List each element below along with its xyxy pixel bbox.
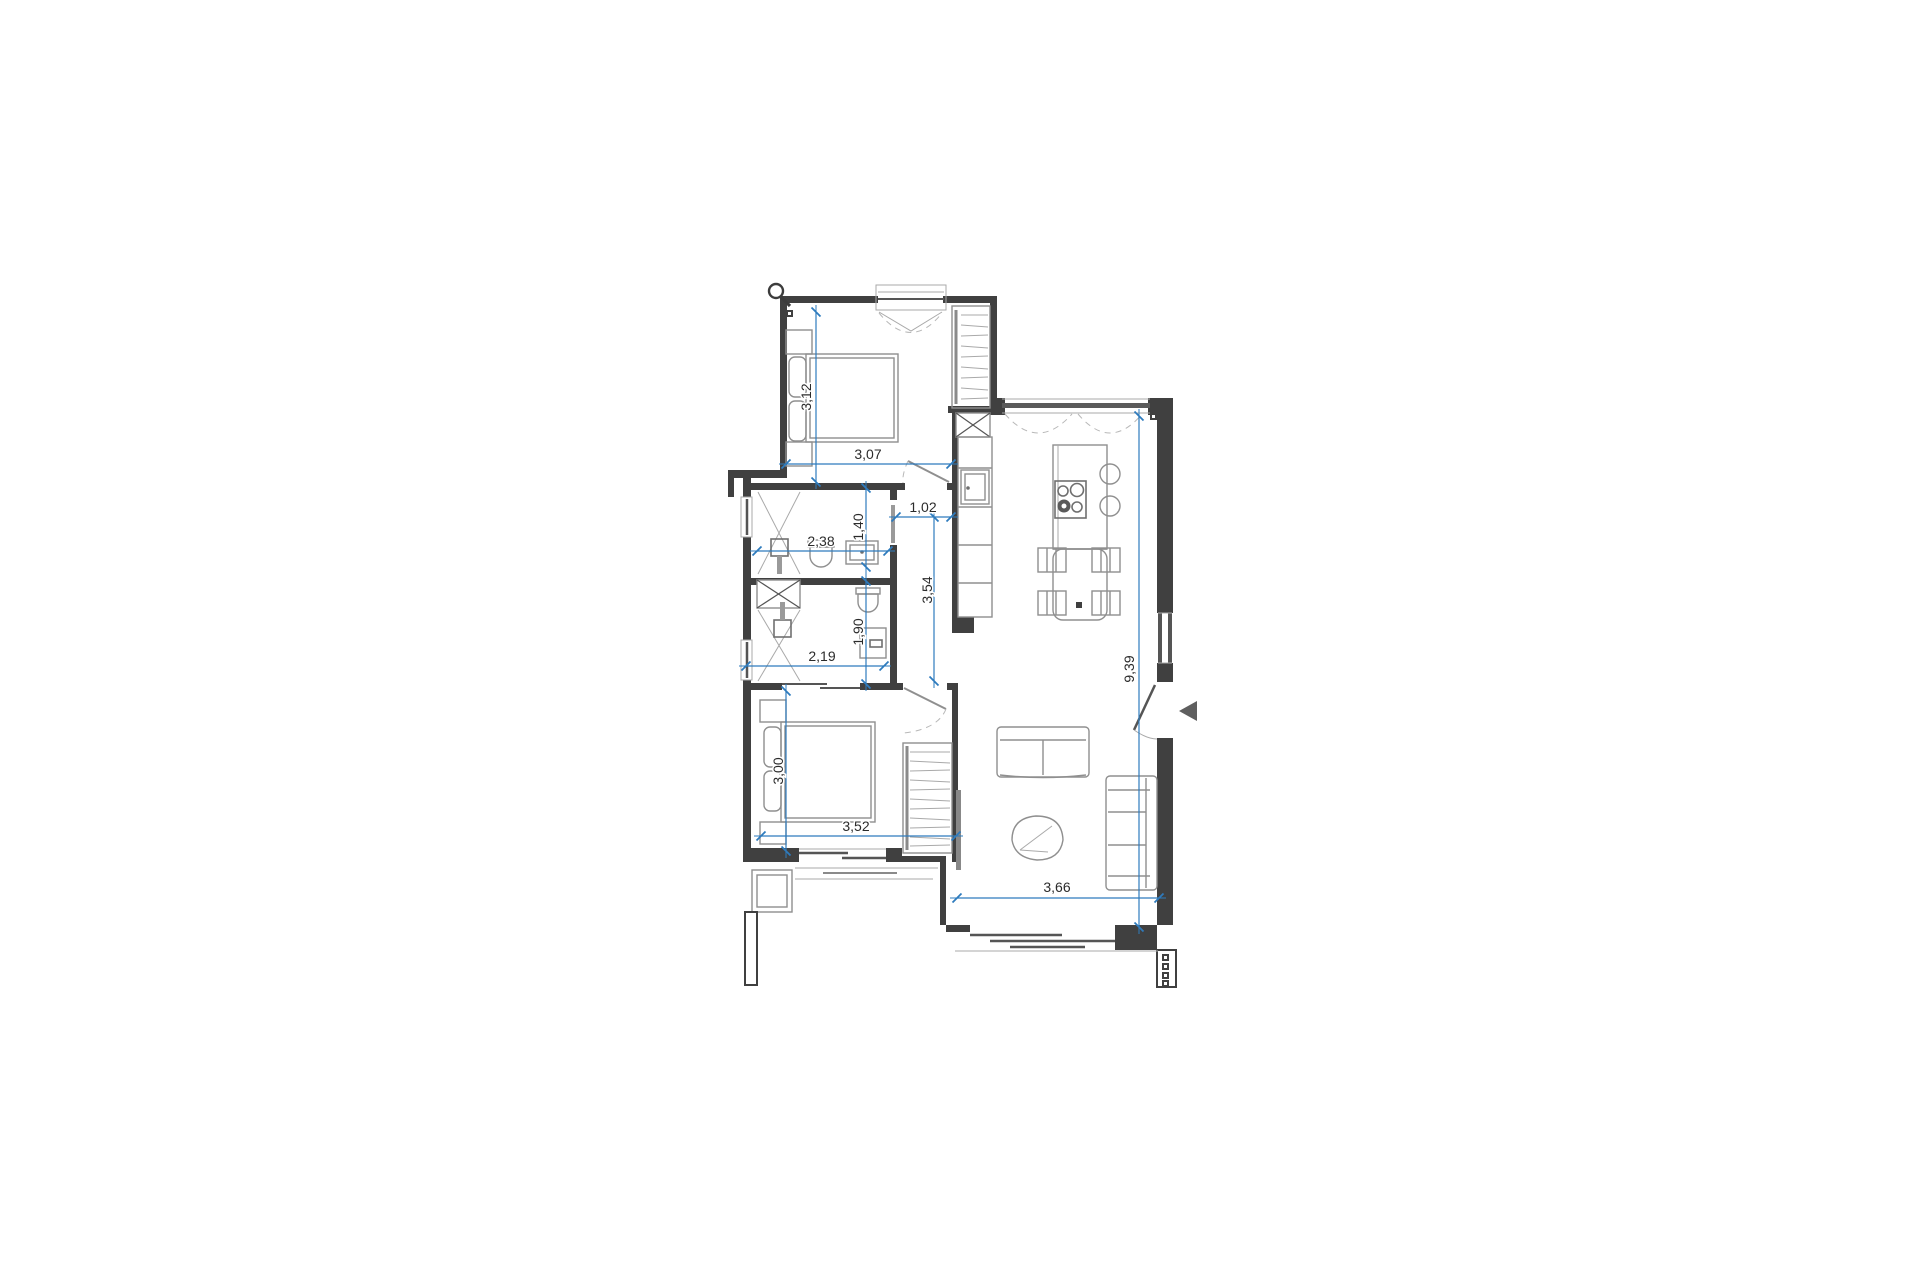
living-window [1002, 403, 1150, 408]
ac-unit [752, 870, 792, 912]
dim-label-bed1-depth: 3,12 [798, 383, 814, 410]
stool [1100, 496, 1120, 516]
corner-marker [1151, 414, 1156, 419]
nightstand [760, 700, 786, 722]
dim-label-bed2-width: 3,52 [842, 818, 869, 834]
loveseat-sofa [997, 727, 1089, 778]
magnifier-icon [769, 284, 790, 306]
dim-label-living-width: 3,66 [1043, 879, 1070, 895]
floor-plan-canvas: 3,12 3,07 1,02 3,54 1,40 2,38 2,19 1,90 … [0, 0, 1920, 1280]
dim-label-bath1-depth: 1,40 [850, 513, 866, 540]
dining-chair [1092, 548, 1120, 572]
bathroom-bay-window-1 [741, 497, 752, 537]
dim-label-hall-length: 3,54 [919, 576, 935, 603]
dim-label-bath2-depth: 1,90 [850, 618, 866, 645]
dim-label-bed1-width: 3,07 [854, 446, 881, 462]
large-sofa [1106, 776, 1157, 890]
bedroom2-balcony [745, 868, 938, 985]
floor-plan: 3,12 3,07 1,02 3,54 1,40 2,38 2,19 1,90 … [0, 0, 1920, 1280]
duct-shaft-kitchen [956, 413, 990, 437]
shower-head [774, 620, 791, 637]
living-window-casement-dashes [1005, 414, 1142, 433]
entrance-door [1134, 685, 1197, 739]
bed-1 [806, 354, 898, 442]
dim-label-bath1-width: 2,38 [807, 533, 834, 549]
dim-label-hall-width: 1,02 [909, 499, 936, 515]
dining-chair [1092, 591, 1120, 615]
bedroom2-sliding-window [799, 849, 886, 858]
bathroom-bay-window-2 [741, 640, 752, 680]
tv-panel [956, 790, 961, 870]
dining-chair [1038, 548, 1066, 572]
stool [1100, 464, 1120, 484]
dining-set [1038, 548, 1120, 620]
bathroom1-pocket-door [891, 505, 895, 543]
bathroom2-sliding-door [782, 684, 860, 688]
dim-label-bath2-width: 2,19 [808, 648, 835, 664]
toilet-2 [856, 588, 880, 594]
right-wall-window [1158, 613, 1172, 663]
dining-table [1053, 549, 1107, 620]
bedroom2-door [904, 688, 946, 733]
corner-marker [787, 311, 792, 316]
dim-label-living-length: 9,39 [1121, 655, 1137, 682]
balcony-wall-stub [745, 912, 757, 985]
dining-chair [1038, 591, 1066, 615]
kitchen-island [1053, 445, 1120, 549]
bedroom1-wardrobe [952, 306, 990, 408]
nightstand [786, 330, 812, 354]
entrance-arrow-icon [1179, 701, 1197, 721]
shower-head [771, 539, 788, 556]
kitchen-counter [958, 437, 992, 617]
duct-shaft-bathrooms [757, 580, 800, 608]
bed-2 [781, 722, 875, 822]
nightstand [760, 822, 786, 844]
bedroom1-window [876, 285, 946, 333]
dim-label-bed2-depth: 3,00 [770, 757, 786, 784]
nightstand [786, 442, 812, 466]
coffee-table [1012, 816, 1063, 860]
